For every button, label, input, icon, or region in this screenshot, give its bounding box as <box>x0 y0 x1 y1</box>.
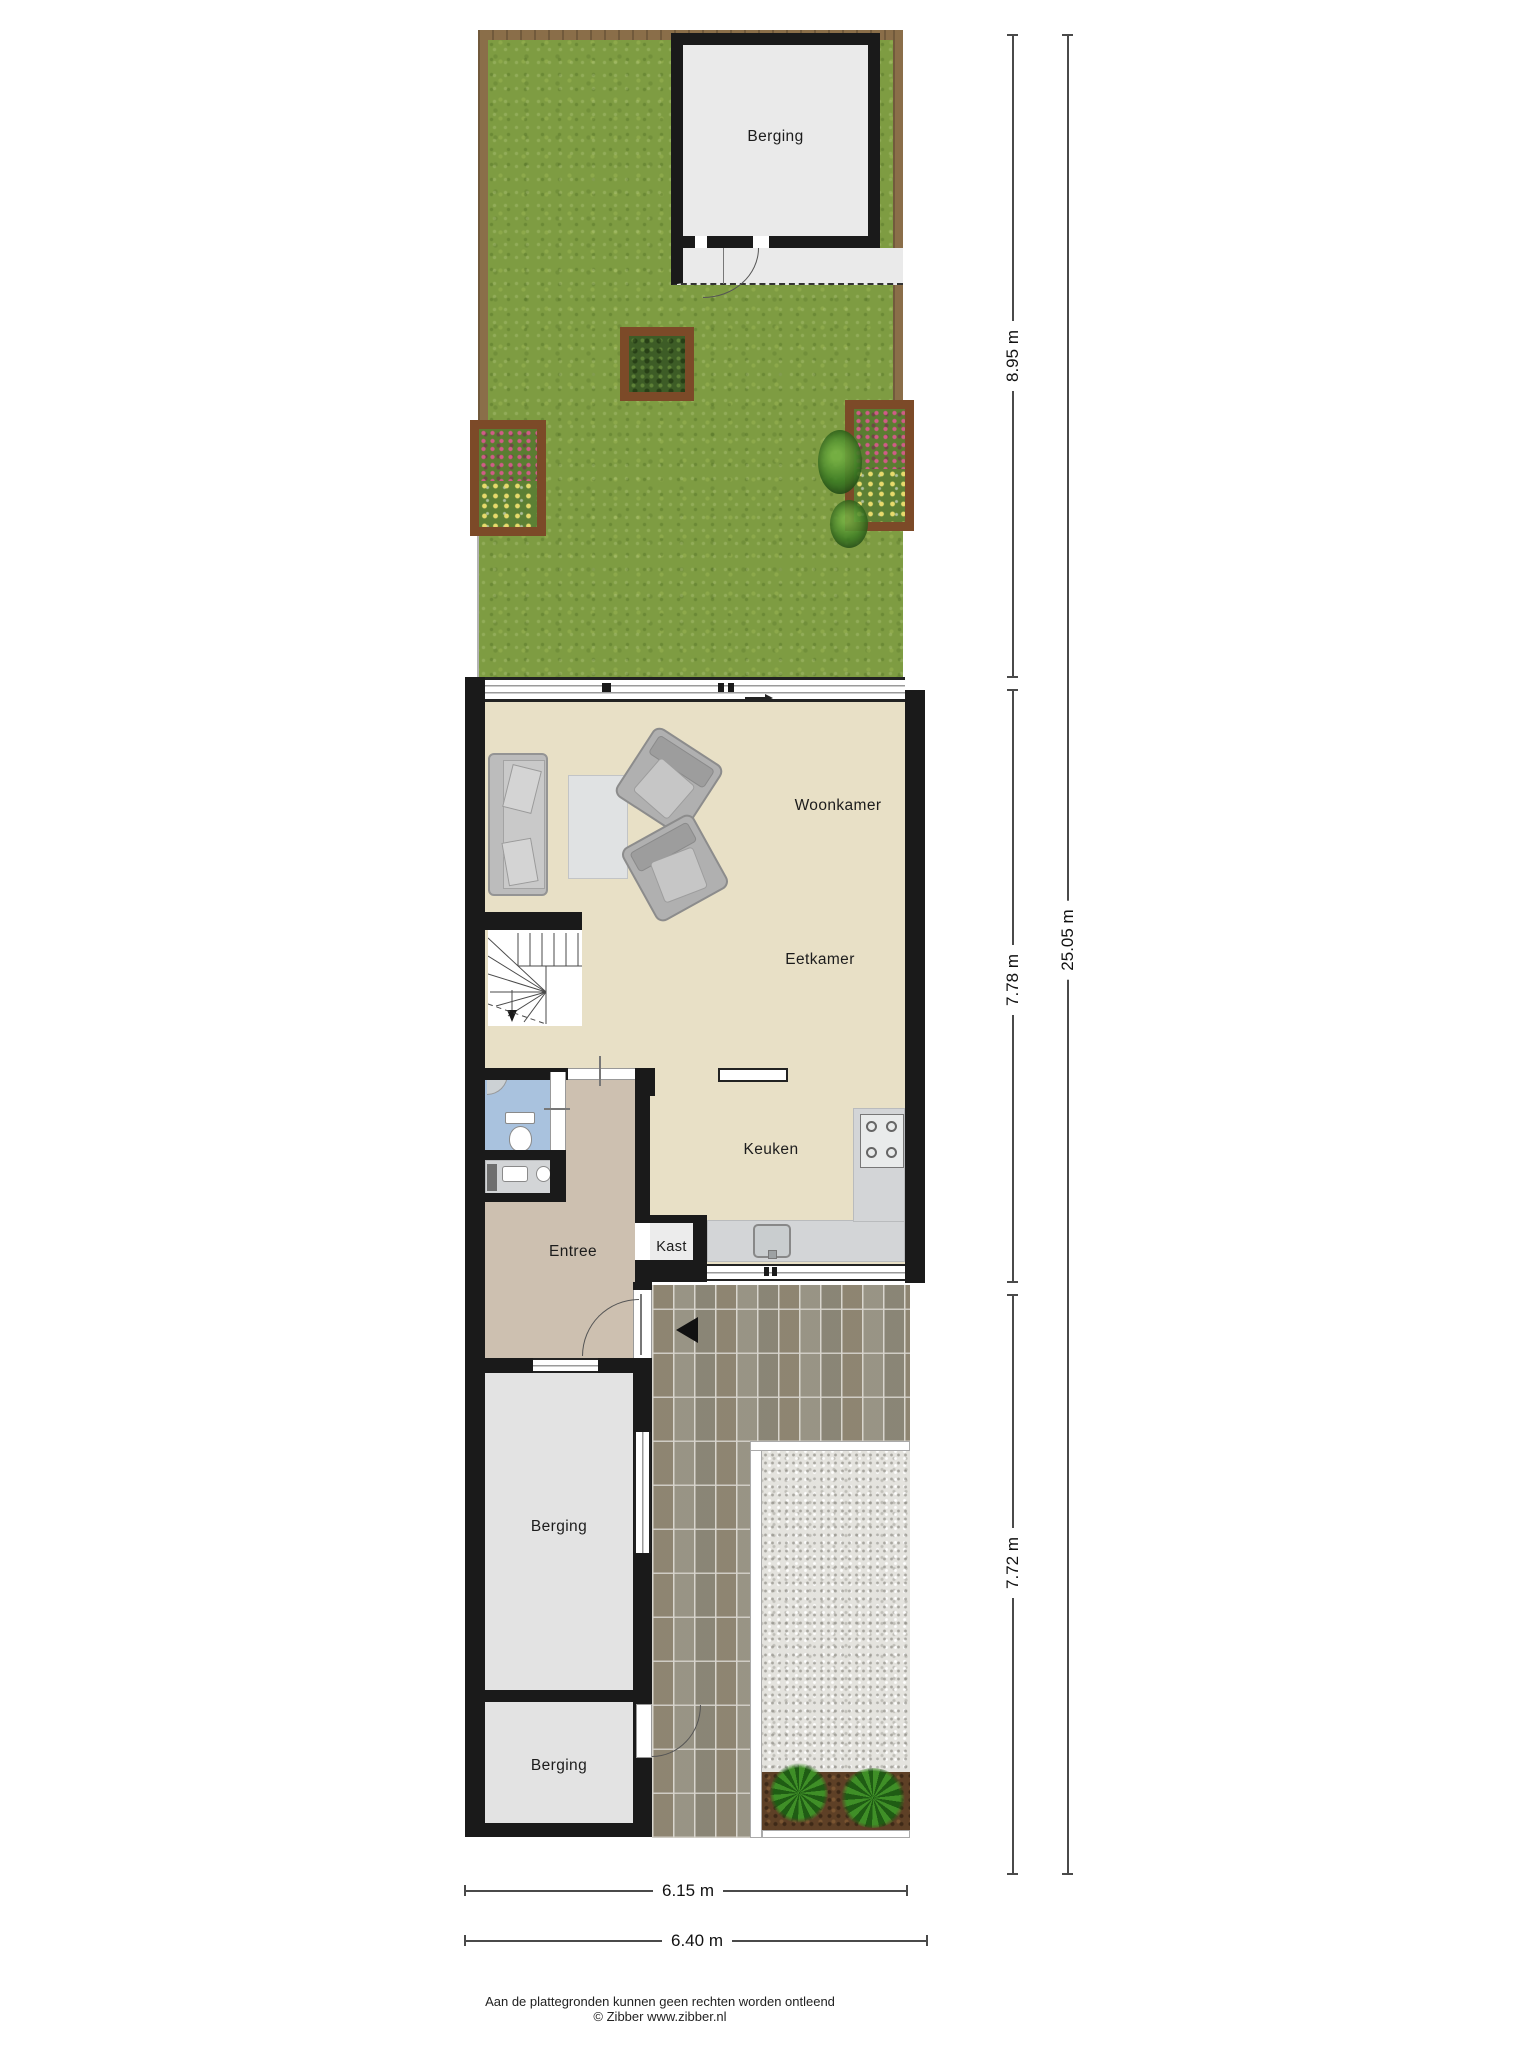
dim-tick <box>464 1935 466 1946</box>
toilet-bowl-icon <box>509 1126 532 1152</box>
window-divider <box>764 1267 769 1276</box>
living-room-label: Woonkamer <box>758 797 918 815</box>
gravel-edge-top <box>750 1441 910 1451</box>
flowers-yellow <box>479 481 537 527</box>
shed-door-opening <box>695 236 707 248</box>
bush-icon <box>818 430 862 494</box>
closet-label: Kast <box>640 1238 703 1256</box>
dim-tick <box>464 1885 466 1896</box>
sofa <box>488 753 548 896</box>
dim-label-total-depth: 25.05 m <box>1056 900 1080 979</box>
floorplan-canvas: Berging <box>0 0 1536 2048</box>
wall-toilet-bottom <box>485 1150 566 1160</box>
dim-tick <box>1007 676 1018 678</box>
footer-disclaimer: Aan de plattegronden kunnen geen rechten… <box>160 1994 1160 2009</box>
dining-room-label: Eetkamer <box>740 951 900 969</box>
sliding-door-arrow-icon <box>765 694 773 702</box>
window-divider <box>602 683 611 692</box>
dim-tick <box>1007 1294 1018 1296</box>
sliding-door-arrow-line <box>745 697 765 699</box>
wall-washbasin-bottom <box>485 1193 566 1202</box>
dim-tick <box>1007 1873 1018 1875</box>
gravel-area <box>762 1451 910 1772</box>
window-divider <box>728 683 734 692</box>
planter-left <box>470 420 546 536</box>
window-divider <box>772 1267 777 1276</box>
washbasin-icon <box>502 1166 528 1182</box>
staircase <box>488 930 582 1026</box>
dim-label-garden-depth: 8.95 m <box>1001 321 1025 391</box>
wall-storage2-bottom <box>465 1823 652 1837</box>
washer-stub <box>487 1164 497 1191</box>
footer: Aan de plattegronden kunnen geen rechten… <box>160 1994 1160 2024</box>
wall-right <box>905 690 925 1283</box>
boundary-line-left <box>477 522 479 678</box>
footer-copyright: © Zibber www.zibber.nl <box>160 2009 1160 2024</box>
kitchen-window <box>707 1264 905 1281</box>
bush-icon <box>830 500 868 548</box>
entry-label: Entree <box>513 1243 633 1261</box>
planter-center <box>620 327 694 401</box>
wall-kitchen-bottom-left <box>635 1260 707 1282</box>
dim-label-total-width: 6.40 m <box>662 1929 732 1953</box>
wall-entry-south-left <box>465 1358 533 1373</box>
stove-icon <box>860 1114 904 1168</box>
sink-tap-icon <box>768 1250 777 1259</box>
dim-tick <box>1007 689 1018 691</box>
toilet-door-tick <box>544 1108 570 1110</box>
wall-stairs-top <box>465 912 582 930</box>
toilet-tank-icon <box>505 1112 535 1124</box>
planter-edge-bottom <box>762 1830 910 1838</box>
front-door-leaf <box>640 1294 642 1355</box>
dim-tick <box>1062 1873 1073 1875</box>
storage2-door-opening <box>636 1704 652 1758</box>
dim-tick <box>1062 34 1073 36</box>
storage2-label: Berging <box>485 1757 633 1775</box>
wall-washbasin-right <box>550 1160 566 1195</box>
dim-tick <box>906 1885 908 1896</box>
flowers-pink <box>479 429 537 481</box>
dim-tick <box>1007 1281 1018 1283</box>
plant-icon <box>770 1763 828 1823</box>
toilet-door-opening <box>550 1072 566 1150</box>
wall-left <box>465 677 485 1837</box>
storage1-window <box>634 1432 651 1553</box>
shrub-dark <box>629 336 685 392</box>
entrance-arrow-icon <box>676 1317 698 1343</box>
dim-tick <box>1007 34 1018 36</box>
tap-icon <box>536 1166 551 1182</box>
entry-window <box>533 1358 598 1373</box>
wall-storage-mid <box>465 1690 652 1702</box>
kitchen-counter-bottom <box>707 1220 905 1262</box>
shed-porch-post-line <box>723 248 724 284</box>
shed-label: Berging <box>671 128 880 146</box>
hall-door-opening <box>568 1068 635 1080</box>
kitchen-label: Keuken <box>691 1141 851 1159</box>
dim-label-main-depth: 7.78 m <box>1001 945 1025 1015</box>
dim-label-building-width: 6.15 m <box>653 1879 723 1903</box>
dim-tick <box>926 1935 928 1946</box>
dim-label-rear-depth: 7.72 m <box>1001 1528 1025 1598</box>
wall-entry-kitchen <box>635 1068 650 1218</box>
plant-icon <box>840 1768 906 1828</box>
hall-door-tick <box>599 1056 601 1086</box>
storage1-label: Berging <box>485 1518 633 1536</box>
rear-window-band <box>485 677 905 702</box>
window-divider <box>718 683 724 692</box>
shed-window-opening <box>753 236 769 248</box>
gravel-edge-left <box>750 1441 762 1838</box>
kitchen-passthrough <box>718 1068 788 1082</box>
staircase-drawing <box>488 930 582 1026</box>
